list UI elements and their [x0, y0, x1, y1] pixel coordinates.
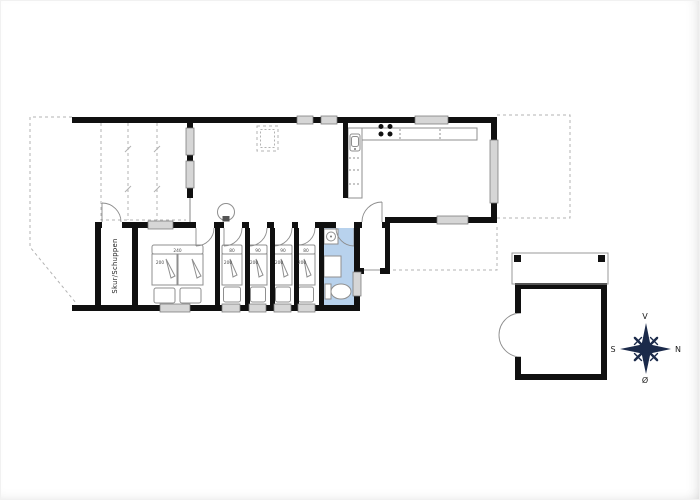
wall-bottom — [72, 305, 360, 311]
single-bed-1-length-label: 200 — [224, 260, 232, 266]
window — [222, 304, 240, 312]
window — [249, 304, 266, 312]
bedroom4-door-arc — [298, 228, 315, 245]
single-bed-1-width-label: 80 — [229, 248, 235, 254]
skylight-dashed — [257, 126, 278, 151]
window — [321, 116, 337, 124]
window — [298, 304, 315, 312]
right-terrace-outline — [497, 115, 570, 218]
window — [415, 116, 448, 124]
single-bed-4-width-label: 80 — [303, 248, 309, 254]
shower-icon — [324, 256, 341, 277]
kitchen-sink-icon — [350, 134, 360, 151]
window — [160, 304, 190, 312]
kitchen-wall — [343, 117, 348, 198]
bedroom1-door-arc — [224, 228, 242, 246]
double-bed-width-label: 240 — [173, 248, 181, 254]
compass-star — [620, 323, 671, 374]
compass-label-south: S — [610, 345, 615, 354]
window — [490, 140, 498, 203]
window — [437, 216, 468, 224]
wood-stove-icon — [218, 204, 235, 222]
window — [353, 272, 361, 296]
single-bed-2-width-label: 90 — [255, 248, 261, 254]
toilet-icon — [325, 284, 351, 299]
single-bed-4-length-label: 200 — [298, 260, 306, 266]
garage-overhang — [512, 253, 608, 284]
left-terrace-outline — [30, 117, 76, 303]
skylight-dashed-inner — [261, 130, 275, 148]
double-bedroom-door-arc — [196, 228, 214, 246]
compass-rose: V N S Ø — [610, 312, 681, 385]
window — [274, 304, 291, 312]
furniture-layer — [152, 124, 477, 303]
shed-door-arc — [102, 203, 121, 222]
window — [148, 221, 173, 229]
compass-label-west: V — [642, 312, 648, 321]
garage-post — [514, 255, 521, 262]
compass-label-east: Ø — [642, 375, 648, 385]
garage-post — [598, 255, 605, 262]
single-bed-2-length-label: 200 — [250, 260, 258, 266]
hall-living-door-arc — [362, 202, 382, 222]
carport-area — [101, 123, 186, 220]
garage-double-door-arcs — [499, 313, 521, 357]
window — [186, 128, 194, 155]
single-bed-3-width-label: 90 — [280, 248, 286, 254]
window — [186, 161, 194, 188]
floor-plan-canvas: Skur/Schuppen 240 200 80 200 90 200 90 2… — [0, 0, 700, 500]
entry-terrace-outline — [390, 227, 497, 270]
double-bed-length-label: 200 — [156, 260, 164, 266]
garage-building — [515, 283, 607, 380]
bedroom2-door-arc — [249, 228, 267, 246]
floor-plan-page: Skur/Schuppen 240 200 80 200 90 200 90 2… — [0, 0, 700, 500]
carport-tick-marks — [125, 146, 160, 192]
compass-label-north: N — [675, 345, 681, 354]
single-bed-3-length-label: 200 — [275, 260, 283, 266]
shed-label: Skur/Schuppen — [111, 238, 119, 293]
kitchen-counter — [348, 128, 477, 198]
bedroom3-door-arc — [274, 228, 292, 246]
window — [297, 116, 313, 124]
